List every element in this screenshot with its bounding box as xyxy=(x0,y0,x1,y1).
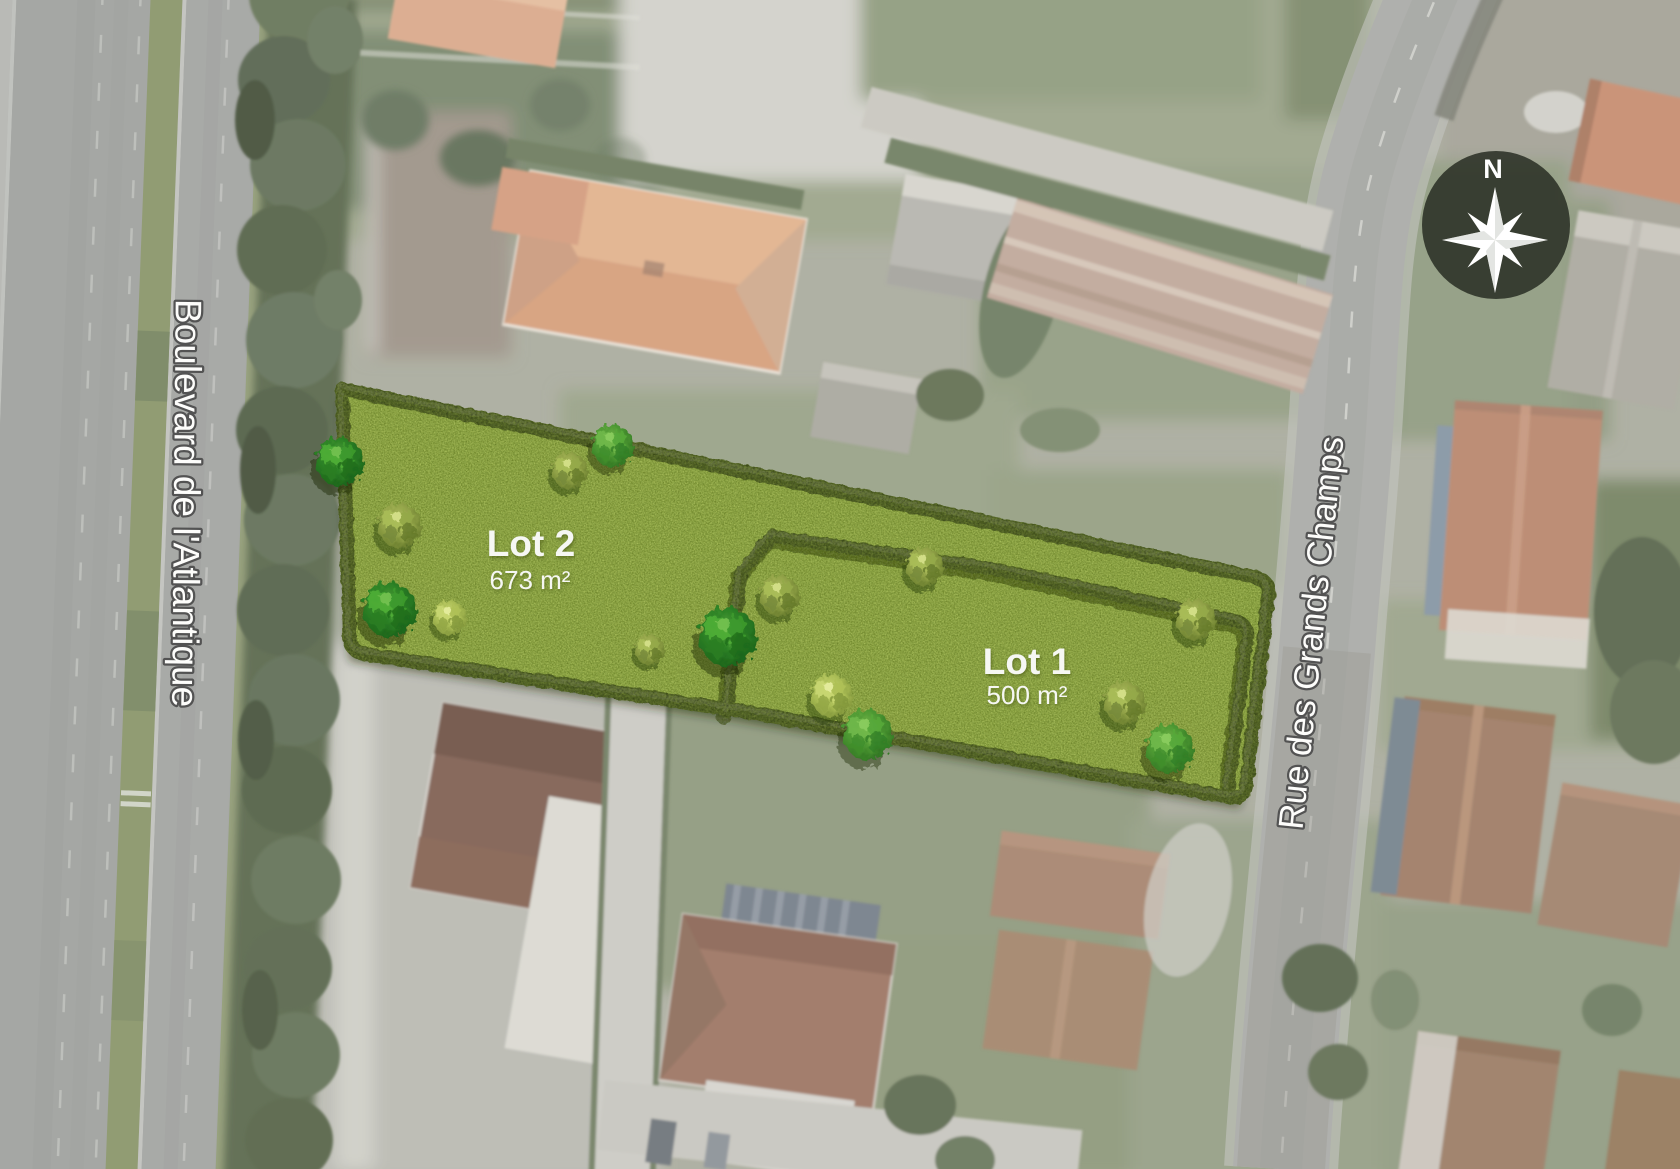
svg-text:Boulevard de l'Atlantique: Boulevard de l'Atlantique xyxy=(164,299,209,708)
svg-text:500 m²: 500 m² xyxy=(987,680,1068,710)
svg-text:Lot 2: Lot 2 xyxy=(487,523,575,564)
svg-text:673 m²: 673 m² xyxy=(490,565,571,595)
svg-text:N: N xyxy=(1483,154,1503,184)
svg-text:Lot 1: Lot 1 xyxy=(983,641,1071,682)
